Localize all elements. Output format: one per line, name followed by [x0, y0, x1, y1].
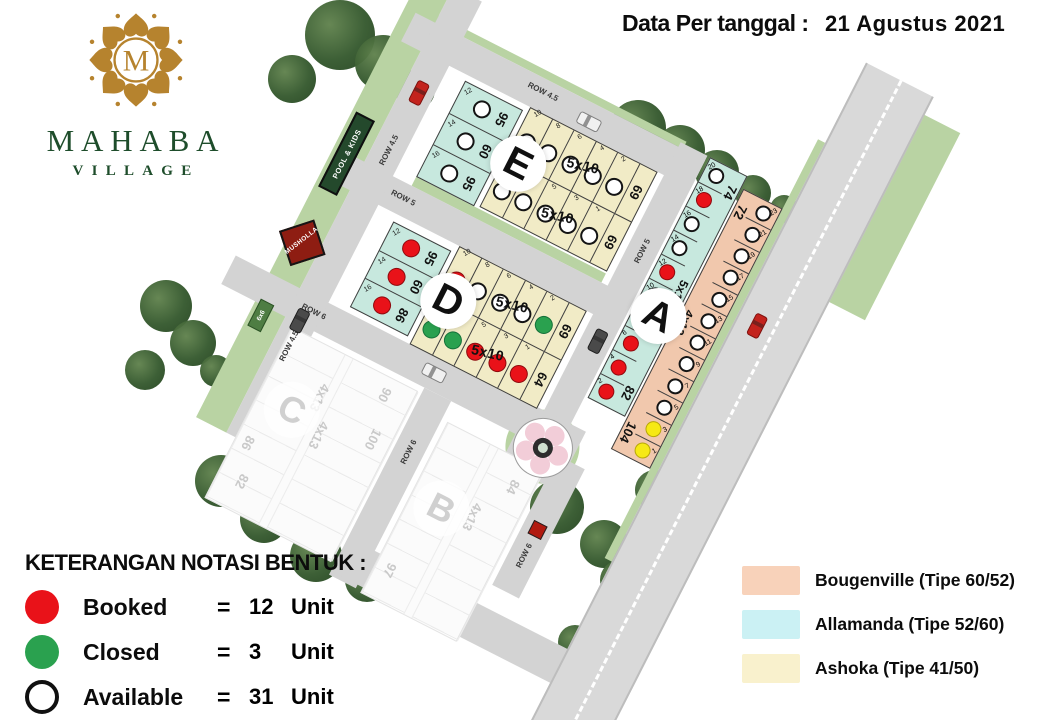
- type-row-ashoka: Ashoka (Tipe 41/50): [742, 654, 1015, 683]
- lot-number: 4: [528, 283, 535, 291]
- legend-count: 31: [249, 684, 291, 710]
- lot-number: 14: [377, 256, 387, 266]
- status-circle-available: [602, 174, 626, 198]
- legend-unit: Unit: [291, 594, 334, 620]
- status-circle-hold: [632, 440, 654, 462]
- data-date-bar: Data Per tanggal : 21 Agustus 2021: [622, 10, 1005, 37]
- lot-area-label: 95: [420, 249, 440, 269]
- status-circle-available: [665, 375, 687, 397]
- status-circle-available: [676, 354, 698, 376]
- status-legend: KETERANGAN NOTASI BENTUK : Booked = 12 U…: [25, 550, 366, 720]
- ashoka-swatch: [742, 654, 800, 683]
- lot-number: 8: [484, 261, 491, 269]
- status-circle-hold: [643, 418, 665, 440]
- status-circle-available: [511, 190, 535, 214]
- status-circle-booked: [596, 381, 618, 403]
- booked-circle-icon: [25, 590, 59, 624]
- legend-label: Available: [83, 684, 217, 711]
- date-label: Data Per tanggal :: [622, 10, 809, 36]
- site-plan-flyer: ROW 4.5 ROW 4.5 ROW 4.5 ROW 5 ROW 6 ROW …: [0, 0, 1040, 720]
- lot-number: 3: [573, 194, 580, 202]
- legend-row-closed: Closed = 3 Unit: [25, 635, 366, 669]
- lot-area-label: 86: [392, 305, 412, 325]
- legend-eq: =: [217, 684, 249, 711]
- lot-number: 14: [447, 119, 457, 129]
- brand-name: MAHABA: [22, 123, 250, 159]
- bougenville-swatch: [742, 566, 800, 595]
- green-tag-label: 6x6: [255, 309, 266, 322]
- type-label: Ashoka (Tipe 41/50): [815, 658, 979, 679]
- status-circle-available: [654, 397, 676, 419]
- lot-area-label: 95: [491, 110, 511, 130]
- type-row-bougenville: Bougenville (Tipe 60/52): [742, 566, 1015, 595]
- lot-number: 7: [684, 382, 691, 390]
- allamanda-swatch: [742, 610, 800, 639]
- lot-area-label: 95: [459, 173, 479, 193]
- lot-number: 3: [662, 426, 669, 434]
- type-label: Allamanda (Tipe 52/60): [815, 614, 1004, 635]
- lot-number: 16: [363, 284, 373, 294]
- legend-eq: =: [217, 639, 249, 666]
- lot-number: 2: [621, 156, 628, 164]
- status-circle-available: [577, 224, 601, 248]
- lot-number: 5: [673, 404, 680, 412]
- status-circle-booked: [370, 293, 394, 317]
- status-circle-available: [687, 332, 709, 354]
- lot-number: 16: [431, 150, 441, 160]
- brand-logo: M MAHABA VILLAGE: [22, 4, 250, 180]
- legend-count: 3: [249, 639, 291, 665]
- lot-number: 2: [550, 295, 557, 303]
- legend-count: 12: [249, 594, 291, 620]
- lot-number: 12: [463, 87, 473, 97]
- lot-number: 9: [695, 361, 702, 369]
- lot-number: 3: [503, 332, 510, 340]
- legend-label: Booked: [83, 594, 217, 621]
- type-legend: Bougenville (Tipe 60/52) Allamanda (Tipe…: [742, 566, 1015, 698]
- legend-label: Closed: [83, 639, 217, 666]
- legend-row-booked: Booked = 12 Unit: [25, 590, 366, 624]
- status-circle-booked: [399, 237, 423, 261]
- status-circle-closed: [532, 313, 556, 337]
- lot-number: 6: [577, 133, 584, 141]
- status-circle-booked: [384, 265, 408, 289]
- closed-circle-icon: [25, 635, 59, 669]
- type-row-allamanda: Allamanda (Tipe 52/60): [742, 610, 1015, 639]
- lot-number: 8: [555, 122, 562, 130]
- type-label: Bougenville (Tipe 60/52): [815, 570, 1015, 591]
- status-circle-booked: [608, 357, 630, 379]
- legend-eq: =: [217, 594, 249, 621]
- lot-number: 1: [595, 205, 602, 213]
- legend-row-available: Available = 31 Unit: [25, 680, 366, 714]
- lot-number: 12: [391, 228, 401, 238]
- available-circle-icon: [25, 680, 59, 714]
- logo-monogram-icon: M: [80, 4, 192, 116]
- status-circle-available: [753, 202, 775, 224]
- status-circle-closed: [441, 328, 465, 352]
- legend-unit: Unit: [291, 684, 334, 710]
- status-circle-booked: [507, 362, 531, 386]
- status-circle-available: [709, 289, 731, 311]
- row-area-label: 69: [601, 232, 621, 252]
- lot-number: 4: [599, 144, 606, 152]
- lot-number: 6: [506, 272, 513, 280]
- status-circle-available: [437, 161, 461, 185]
- lot-number: 5: [481, 321, 488, 329]
- row-area-label: 64: [531, 370, 551, 390]
- lot-number: 1: [651, 447, 658, 455]
- row-area-label: 69: [555, 321, 575, 341]
- status-circle-available: [698, 310, 720, 332]
- status-legend-title: KETERANGAN NOTASI BENTUK :: [25, 550, 366, 576]
- status-circle-available: [731, 246, 753, 268]
- lot-number: 1: [525, 343, 532, 351]
- monogram-letter: M: [123, 44, 150, 77]
- status-circle-available: [720, 267, 742, 289]
- brand-subtitle: VILLAGE: [22, 163, 250, 180]
- status-circle-available: [470, 98, 494, 122]
- date-value: 21 Agustus 2021: [825, 11, 1005, 36]
- legend-unit: Unit: [291, 639, 334, 665]
- status-circle-available: [453, 129, 477, 153]
- lot-number: 5: [552, 183, 559, 191]
- row-area-label: 69: [626, 183, 646, 203]
- status-circle-available: [742, 224, 764, 246]
